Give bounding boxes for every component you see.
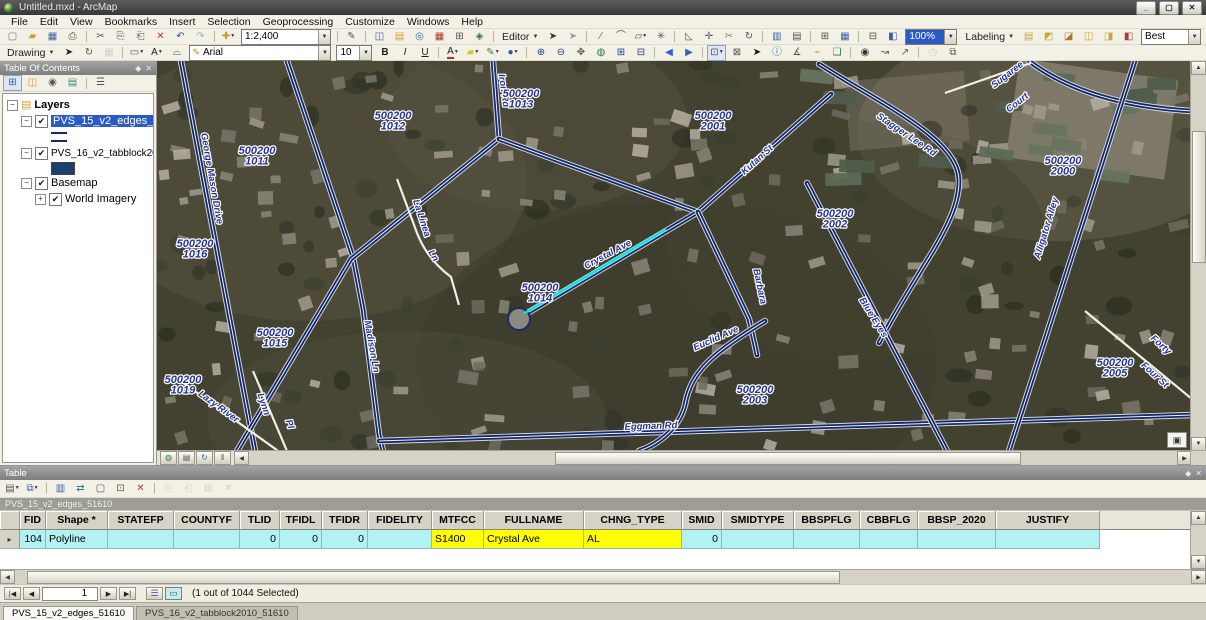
create-features-button[interactable]: ◧ — [883, 29, 902, 45]
menu-edit[interactable]: Edit — [34, 16, 64, 28]
printer-icon: ⎙ — [69, 32, 77, 42]
toc-title: Table Of Contents — [4, 63, 80, 74]
close-button[interactable]: ✕ — [1182, 1, 1202, 15]
column-header-justify[interactable]: JUSTIFY — [996, 511, 1100, 530]
show-selected-records-button[interactable]: ▭ — [165, 587, 182, 600]
menu-insert[interactable]: Insert — [163, 16, 201, 28]
menu-help[interactable]: Help — [455, 16, 489, 28]
zoom-to-selected-icon: ⊡ — [116, 484, 124, 494]
cell-justify[interactable] — [996, 530, 1100, 549]
save-button[interactable]: ▦ — [43, 29, 62, 45]
column-header-statefp[interactable]: STATEFP — [108, 511, 174, 530]
switch-selection-icon: ⇄ — [76, 484, 84, 494]
fixed-zoom-out-button[interactable]: ⊟ — [631, 45, 650, 61]
find-route-button[interactable]: ↝ — [875, 45, 894, 61]
cell-fidelity[interactable] — [368, 530, 432, 549]
menu-file[interactable]: File — [5, 16, 34, 28]
menu-customize[interactable]: Customize — [339, 16, 401, 28]
cut-button[interactable]: ✂ — [91, 29, 110, 45]
pan-hand-icon: ✥ — [577, 48, 585, 58]
forward-extent-button[interactable]: ▶ — [679, 45, 698, 61]
chevron-down-icon[interactable]: ▼ — [318, 30, 330, 44]
layer-label[interactable]: Basemap — [51, 177, 97, 189]
related-tables-icon: ⧉ — [26, 484, 33, 494]
add-data-plus-icon: ✚ — [222, 32, 230, 42]
next-record-button[interactable]: ▶ — [100, 587, 117, 600]
map-vertical-scrollbar[interactable]: ▲ ▼ — [1190, 61, 1206, 451]
time-slider-clock-icon: ◷ — [929, 48, 938, 58]
list-by-selection-button[interactable]: ▤ — [63, 75, 82, 91]
collapse-icon[interactable]: − — [7, 100, 18, 111]
layer-label[interactable]: PVS_16_v2_tabblock2010_51610 — [51, 148, 154, 159]
editor-move-button[interactable]: ✛ — [699, 29, 718, 45]
auto-hide-pin-icon[interactable]: ◆ — [135, 64, 141, 73]
toc-item-edges-layer[interactable]: − ✔ PVS_15_v2_edges_51610 — [21, 113, 153, 129]
highlight-color-button[interactable]: ▰▼ — [463, 45, 482, 61]
toolbar-row-2: Drawing▼➤↻▦▭▼A▼⌓✎Arial▼10▼BIUA▼▰▼✎▼●▼⊕⊖✥… — [0, 45, 1206, 61]
delete-selected-button[interactable]: ✕ — [131, 481, 150, 497]
column-header-fid[interactable]: FID — [20, 511, 46, 530]
editor-rotate-tool-button[interactable]: ↻ — [739, 29, 758, 45]
toolbar-separator — [438, 47, 439, 58]
map-horizontal-scrollbar[interactable]: ◍▤↻‖ ◀ ▶ — [157, 450, 1192, 465]
snapping-button[interactable]: ⊟ — [863, 29, 882, 45]
column-header-smid[interactable]: SMID — [682, 511, 722, 530]
font-color-button[interactable]: A▼ — [443, 45, 462, 61]
map-scale-combo-value: 1:2,400 — [242, 30, 318, 44]
toolbar-separator — [918, 47, 919, 58]
scrollbar-thumb[interactable] — [555, 452, 1021, 465]
red-toolbox-icon: ▦ — [435, 32, 444, 42]
python-window-button[interactable]: ⊞ — [450, 29, 469, 45]
underline-button[interactable]: U — [415, 45, 434, 61]
pause-labeling-button[interactable]: ◨ — [1099, 29, 1118, 45]
drawing-order-icon: ⊞ — [8, 78, 16, 88]
close-icon[interactable]: ✕ — [1195, 469, 1202, 478]
html-popup-button[interactable]: ❏ — [827, 45, 846, 61]
toolbar-separator — [586, 31, 587, 42]
chevron-down-icon[interactable]: ▼ — [944, 30, 956, 44]
zoom-out-icon: ⊖ — [557, 48, 565, 58]
select-features-button[interactable]: ⊡▼ — [707, 45, 726, 61]
list-by-visibility-button[interactable]: ◉ — [43, 75, 62, 91]
zoom-percent-combo-value: 100% — [906, 30, 944, 44]
move-cross-icon: ✛ — [705, 32, 713, 42]
label-manager-icon: ▤ — [1024, 32, 1033, 42]
scroll-right-arrow[interactable]: ▶ — [1191, 570, 1206, 584]
column-header-countyf[interactable]: COUNTYF — [174, 511, 240, 530]
layer-label-selected[interactable]: PVS_15_v2_edges_51610 — [51, 115, 154, 127]
table-of-contents-window-button[interactable]: ◫ — [370, 29, 389, 45]
label-manager-button[interactable]: ▤ — [1019, 29, 1038, 45]
column-header-tfidr[interactable]: TFIDR — [322, 511, 368, 530]
auto-hide-pin-icon[interactable]: ◆ — [1185, 469, 1191, 478]
go-to-xy-button[interactable]: ↗ — [895, 45, 914, 61]
column-header-shape[interactable]: Shape * — [46, 511, 108, 530]
label-priority-icon: ◩ — [1044, 32, 1053, 42]
modelbuilder-icon: ◈ — [476, 32, 484, 42]
new-map-button[interactable]: ▢ — [3, 29, 22, 45]
editor-trace-button[interactable]: ▱▼ — [631, 29, 650, 45]
table-options-button[interactable]: ▤▼ — [3, 481, 22, 497]
copy-rows-button: ⎗ — [179, 481, 198, 497]
zoom-out-button[interactable]: ⊖ — [551, 45, 570, 61]
snap-grid-button: ▦ — [99, 45, 118, 61]
map-topology-button[interactable]: ⊞ — [815, 29, 834, 45]
chevron-down-icon[interactable]: ▼ — [1188, 30, 1200, 44]
toc-item-layers[interactable]: − ▤ Layers — [7, 97, 153, 113]
clear-selection-button[interactable]: ⊠ — [727, 45, 746, 61]
identify-button[interactable]: ⓘ — [767, 45, 786, 61]
catalog-window-button[interactable]: ▤ — [390, 29, 409, 45]
column-header-bbsp-2020[interactable]: BBSP_2020 — [918, 511, 996, 530]
highlighter-icon: ▰ — [467, 48, 475, 58]
cell-fid[interactable]: 104 — [20, 530, 46, 549]
arc-segment-icon: ⌒ — [616, 32, 626, 42]
refresh-view-button[interactable]: ↻ — [196, 451, 213, 465]
previous-record-button[interactable]: ◀ — [23, 587, 40, 600]
unplaced-labels-icon: ◧ — [1124, 32, 1133, 42]
chevron-down-icon[interactable]: ▼ — [359, 46, 371, 60]
scrollbar-corner — [1190, 450, 1206, 465]
route-icon: ↝ — [881, 48, 889, 58]
map-scale-combo[interactable]: 1:2,400▼ — [241, 29, 331, 45]
toolbar-separator — [86, 31, 87, 42]
column-header-mtfcc[interactable]: MTFCC — [432, 511, 484, 530]
scrollbar-thumb[interactable] — [1192, 131, 1206, 263]
open-folder-icon: ▰ — [29, 32, 37, 42]
measure-button[interactable]: ∡ — [787, 45, 806, 61]
editor-arc-segment-button[interactable]: ⌒ — [611, 29, 630, 45]
view-unplaced-labels-button[interactable]: ◧ — [1119, 29, 1138, 45]
labeling-toolbar-label[interactable]: Labeling▼ — [961, 31, 1018, 43]
cell-mtfcc[interactable]: S1400 — [432, 530, 484, 549]
minimize-button[interactable]: _ — [1136, 1, 1156, 15]
column-header-smidtype[interactable]: SMIDTYPE — [722, 511, 794, 530]
pointer-arrow-icon: ➤ — [65, 48, 73, 58]
editor-attributes-button[interactable]: ▥ — [767, 29, 786, 45]
toolbar-separator — [154, 483, 155, 494]
print-button[interactable]: ⎙ — [63, 29, 82, 45]
collapse-icon[interactable]: − — [21, 178, 32, 189]
editor-annotation-tool-button[interactable]: ➤ — [563, 29, 582, 45]
cell-bbspflg[interactable] — [794, 530, 860, 549]
undo-button[interactable]: ↶ — [171, 29, 190, 45]
black-arrow-icon: ➤ — [753, 48, 761, 58]
drawing-toolbar-label[interactable]: Drawing▼ — [3, 47, 58, 59]
attributes-table-icon: ▥ — [772, 32, 781, 42]
cell-tfidl[interactable]: 0 — [280, 530, 322, 549]
label-priority-button[interactable]: ◩ — [1039, 29, 1058, 45]
zoom-in-icon: ⊕ — [537, 48, 545, 58]
column-header-tlid[interactable]: TLID — [240, 511, 280, 530]
font-size-combo-value: 10 — [337, 46, 359, 60]
cell-smidtype[interactable] — [722, 530, 794, 549]
trace-tool-icon: ▱ — [635, 32, 643, 42]
menu-geoprocessing[interactable]: Geoprocessing — [257, 16, 340, 28]
marker-color-button[interactable]: ●▼ — [503, 45, 522, 61]
menu-selection[interactable]: Selection — [201, 16, 256, 28]
data-view-globe-icon: ◍ — [165, 454, 172, 462]
options-menu-icon: ☰ — [96, 78, 105, 88]
callout-tool-button[interactable]: ⌓ — [167, 45, 186, 61]
label-engine-combo-value: Best — [1142, 30, 1188, 44]
pause-icon: ‖ — [221, 454, 224, 462]
lock-labels-button[interactable]: ◫ — [1079, 29, 1098, 45]
delete-field-button: ✕ — [219, 481, 238, 497]
toc-item-world-imagery[interactable]: + ✔ World Imagery — [35, 191, 153, 207]
menu-bookmarks[interactable]: Bookmarks — [99, 16, 164, 28]
cell-tfidr[interactable]: 0 — [322, 530, 368, 549]
toolbar-separator — [762, 31, 763, 42]
window-title: Untitled.mxd - ArcMap — [19, 2, 117, 13]
label-weight-button[interactable]: ◪ — [1059, 29, 1078, 45]
table-panel-title: Table — [4, 468, 27, 479]
search-window-button[interactable]: ◎ — [410, 29, 429, 45]
column-header-fullname[interactable]: FULLNAME — [484, 511, 584, 530]
map-view-buttons: ◍▤↻‖ — [157, 451, 234, 465]
select-by-attributes-button[interactable]: ▥ — [51, 481, 70, 497]
source-icon: ◫ — [28, 78, 37, 88]
list-by-drawing-order-button[interactable]: ⊞ — [3, 75, 22, 91]
show-all-records-button[interactable]: ☰ — [146, 587, 163, 600]
copy-cell-button: ⎘ — [159, 481, 178, 497]
select-elements-tool-button[interactable]: ➤ — [747, 45, 766, 61]
cell-bbsp-2020[interactable] — [918, 530, 996, 549]
label-engine-combo[interactable]: Best▼ — [1141, 29, 1201, 45]
scroll-up-arrow[interactable]: ▲ — [1191, 61, 1206, 75]
column-header-bbspflg[interactable]: BBSPFLG — [794, 511, 860, 530]
reshape-icon: ◺ — [685, 32, 693, 42]
column-header-fidelity[interactable]: FIDELITY — [368, 511, 432, 530]
toolbar-separator — [654, 47, 655, 58]
fixed-zoom-in-button[interactable]: ⊞ — [611, 45, 630, 61]
copy-button[interactable]: ⎘ — [111, 29, 130, 45]
cell-fullname[interactable]: Crystal Ave — [484, 530, 584, 549]
viewer-window-icon: ⧉ — [949, 48, 956, 58]
cell-smid[interactable]: 0 — [682, 530, 722, 549]
toc-options-button[interactable]: ☰ — [91, 75, 110, 91]
scroll-left-arrow[interactable]: ◀ — [234, 451, 249, 465]
fixed-zoom-in-icon: ⊞ — [617, 48, 625, 58]
street-label: Eggman Rd — [624, 420, 677, 433]
cell-chng-type[interactable]: AL — [584, 530, 682, 549]
visibility-icon: ◉ — [48, 78, 57, 88]
editor-sketch-properties-button[interactable]: ▤ — [787, 29, 806, 45]
title-bar: Untitled.mxd - ArcMap _ ▢ ✕ — [0, 0, 1206, 15]
data-view-button[interactable]: ◍ — [160, 451, 177, 465]
row-selector-header[interactable] — [0, 511, 20, 530]
scroll-left-arrow[interactable]: ◀ — [0, 570, 15, 584]
toc-item-basemap[interactable]: − ✔ Basemap — [21, 175, 153, 191]
bold-button[interactable]: B — [375, 45, 394, 61]
label-weight-icon: ◪ — [1064, 32, 1073, 42]
italic-button[interactable]: I — [395, 45, 414, 61]
toc-title-bar: Table Of Contents ◆ ✕ — [0, 61, 156, 75]
shape-tool-button[interactable]: ▭▼ — [127, 45, 146, 61]
cell-shape[interactable]: Polyline — [46, 530, 108, 549]
scroll-up-arrow[interactable]: ▲ — [1191, 511, 1206, 525]
table-row[interactable]: ▸104Polyline000S1400Crystal AveAL0 — [0, 530, 1206, 549]
rectangle-shape-icon: ▭ — [130, 48, 139, 58]
scroll-down-arrow[interactable]: ▼ — [1191, 437, 1206, 451]
validate-topology-button[interactable]: ▦ — [835, 29, 854, 45]
menu-view[interactable]: View — [64, 16, 99, 28]
layers-group-label: Layers — [34, 99, 69, 111]
checkbox[interactable]: ✔ — [35, 147, 48, 160]
table-tab-edges[interactable]: PVS_15_v2_edges_51610 — [3, 606, 134, 620]
layer-label[interactable]: World Imagery — [65, 193, 136, 205]
delete-x-icon: ✕ — [224, 484, 232, 494]
row-selector-cell[interactable]: ▸ — [0, 530, 20, 549]
lock-labels-icon: ◫ — [1084, 32, 1093, 42]
toolbar-separator — [526, 47, 527, 58]
editor-toolbar-label[interactable]: Editor▼ — [498, 31, 542, 43]
add-data-button[interactable]: ✚▼ — [219, 29, 238, 45]
hyperlink-button[interactable]: ⌁ — [807, 45, 826, 61]
editor-point-button[interactable]: ✳ — [651, 29, 670, 45]
redo-button[interactable]: ↷ — [191, 29, 210, 45]
toc-item-tabblock-layer[interactable]: − ✔ PVS_16_v2_tabblock2010_51610 — [21, 145, 153, 161]
paste-button[interactable]: ⎗ — [131, 29, 150, 45]
toolbar-separator — [46, 483, 47, 494]
column-header-chng-type[interactable]: CHNG_TYPE — [584, 511, 682, 530]
font-size-combo[interactable]: 10▼ — [336, 45, 372, 61]
list-by-source-button[interactable]: ◫ — [23, 75, 42, 91]
map-canvas[interactable]: George Mason DriveIron RdLa LineaLnCryst… — [157, 61, 1192, 451]
collapse-icon[interactable]: − — [21, 116, 32, 127]
edit-toolbar-toggle-button[interactable]: ✎ — [342, 29, 361, 45]
zoom-percent-combo[interactable]: 100%▼ — [905, 29, 957, 45]
modelbuilder-window-button[interactable]: ◈ — [470, 29, 489, 45]
overview-icon: ▣ — [1173, 435, 1182, 446]
column-header-cbbflg[interactable]: CBBFLG — [860, 511, 918, 530]
cell-tlid[interactable]: 0 — [240, 530, 280, 549]
map-view[interactable]: George Mason DriveIron RdLa LineaLnCryst… — [157, 61, 1206, 465]
font-combo[interactable]: ✎Arial▼ — [189, 45, 331, 61]
select-elements-button[interactable]: ➤ — [59, 45, 78, 61]
expand-icon[interactable]: + — [35, 194, 46, 205]
collapse-icon[interactable]: − — [21, 148, 32, 159]
checkbox[interactable]: ✔ — [49, 193, 62, 206]
pause-drawing-button[interactable]: ‖ — [214, 451, 231, 465]
scrollbar-track[interactable] — [15, 570, 1191, 584]
grid-horizontal-scrollbar[interactable]: ◀ ▶ — [0, 569, 1206, 584]
last-record-button[interactable]: ▶| — [119, 587, 136, 600]
italic-icon: I — [404, 48, 407, 58]
toolbar-separator — [850, 47, 851, 58]
toolbar-row-1: ▢▰▦⎙✂⎘⎗✕↶↷✚▼1:2,400▼✎◫▤◎▦⊞◈Editor▼➤➤∕⌒▱▼… — [0, 29, 1206, 45]
callout-icon: ⌓ — [173, 48, 181, 58]
table-tab-tabblock[interactable]: PVS_16_v2_tabblock2010_51610 — [136, 606, 298, 620]
table-title-bar: Table ◆ ✕ — [0, 466, 1206, 480]
layout-page-icon: ▤ — [183, 454, 191, 462]
snapping-icon: ⊟ — [869, 32, 877, 42]
cell-countyf[interactable] — [174, 530, 240, 549]
editor-edit-tool-button[interactable]: ➤ — [543, 29, 562, 45]
scrollbar-track[interactable] — [249, 451, 1177, 465]
cell-cbbflg[interactable] — [860, 530, 918, 549]
line-symbol[interactable] — [51, 132, 67, 142]
calculator-icon: ⊞ — [204, 484, 212, 494]
line-color-button[interactable]: ✎▼ — [483, 45, 502, 61]
editor-straight-segment-button[interactable]: ∕ — [591, 29, 610, 45]
checkbox[interactable]: ✔ — [35, 115, 48, 128]
arctoolbox-window-button[interactable]: ▦ — [430, 29, 449, 45]
editor-split-button[interactable]: ✂ — [719, 29, 738, 45]
table-layer-name: PVS_15_v2_edges_51610 — [0, 498, 1206, 510]
grid-header-row: FIDShape *STATEFPCOUNTYFTLIDTFIDLTFIDRFI… — [0, 511, 1206, 530]
chevron-down-icon: ▼ — [474, 50, 479, 55]
copy-rows-icon: ⎗ — [185, 484, 193, 494]
select-features-icon: ⊡ — [710, 48, 718, 58]
menu-windows[interactable]: Windows — [401, 16, 456, 28]
related-tables-button[interactable]: ⧉▼ — [23, 481, 42, 497]
scrollbar-thumb[interactable] — [27, 571, 840, 584]
rotate-element-button[interactable]: ↻ — [79, 45, 98, 61]
first-record-button[interactable]: |◀ — [4, 587, 21, 600]
chevron-down-icon: ▼ — [230, 34, 235, 39]
html-popup-icon: ❏ — [832, 48, 841, 58]
scroll-down-arrow[interactable]: ▼ — [1191, 555, 1206, 569]
attribute-grid: FIDShape *STATEFPCOUNTYFTLIDTFIDLTFIDRFI… — [0, 510, 1206, 569]
chevron-down-icon: ▼ — [1008, 34, 1014, 40]
text-tool-button[interactable]: A▼ — [147, 45, 166, 61]
layout-view-button[interactable]: ▤ — [178, 451, 195, 465]
selection-status: (1 out of 1044 Selected) — [192, 588, 299, 599]
pan-button[interactable]: ✥ — [571, 45, 590, 61]
polygon-fill-symbol[interactable] — [51, 162, 75, 175]
cell-statefp[interactable] — [108, 530, 174, 549]
grid-vertical-scrollbar[interactable]: ▲ ▼ — [1190, 511, 1206, 569]
create-features-icon: ◧ — [888, 32, 897, 42]
search-window-icon: ◎ — [415, 32, 424, 42]
toc-window-icon: ◫ — [375, 32, 384, 42]
close-icon[interactable]: ✕ — [145, 64, 152, 73]
toolbar-separator — [337, 31, 338, 42]
restore-button[interactable]: ▢ — [1159, 1, 1179, 15]
toolbar-separator — [493, 31, 494, 42]
chevron-down-icon[interactable]: ▼ — [318, 46, 330, 60]
chevron-down-icon: ▼ — [158, 50, 163, 55]
paste-icon: ⎗ — [137, 32, 145, 42]
viewer-window-button[interactable]: ⧉ — [943, 45, 962, 61]
overview-window-button[interactable]: ▣ — [1167, 432, 1187, 448]
editor-reshape-button[interactable]: ◺ — [679, 29, 698, 45]
pause-labeling-icon: ◨ — [1104, 32, 1113, 42]
back-extent-button[interactable]: ◀ — [659, 45, 678, 61]
open-button[interactable]: ▰ — [23, 29, 42, 45]
time-slider-button: ◷ — [923, 45, 942, 61]
zoom-in-button[interactable]: ⊕ — [531, 45, 550, 61]
clear-table-selection-button[interactable]: ▢ — [91, 481, 110, 497]
current-record-input[interactable] — [42, 587, 98, 601]
validate-topology-icon: ▦ — [840, 32, 849, 42]
checkbox[interactable]: ✔ — [35, 177, 48, 190]
switch-selection-button[interactable]: ⇄ — [71, 481, 90, 497]
measure-ruler-icon: ∡ — [792, 48, 801, 58]
chevron-down-icon: ▼ — [15, 486, 20, 491]
full-extent-button[interactable]: ◍ — [591, 45, 610, 61]
chevron-down-icon: ▼ — [719, 50, 724, 55]
toolbar-separator — [365, 31, 366, 42]
arcmap-app-icon — [4, 3, 14, 13]
find-button[interactable]: ◉ — [855, 45, 874, 61]
column-header-tfidl[interactable]: TFIDL — [280, 511, 322, 530]
zoom-to-selected-button[interactable]: ⊡ — [111, 481, 130, 497]
field-calculator-button: ⊞ — [199, 481, 218, 497]
delete-button[interactable]: ✕ — [151, 29, 170, 45]
